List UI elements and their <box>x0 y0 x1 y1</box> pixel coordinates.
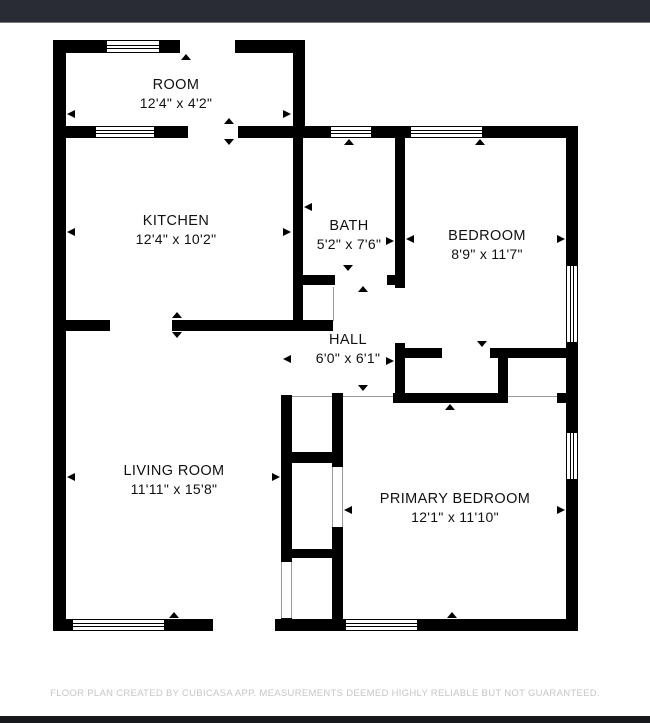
dimension-arrow-right <box>283 228 291 236</box>
window <box>330 126 372 138</box>
room-dimensions: 12'1" x 11'10" <box>380 509 531 526</box>
wall-segment <box>66 320 110 331</box>
room-label-hall: HALL6'0" x 6'1" <box>316 332 381 367</box>
opening-threshold-line <box>333 287 334 321</box>
window <box>410 126 483 138</box>
wall-segment <box>293 138 303 331</box>
room-dimensions: 12'4" x 4'2" <box>140 95 213 112</box>
room-dimensions: 11'11" x 15'8" <box>123 481 224 498</box>
wall-segment <box>332 527 343 619</box>
room-label-room: ROOM12'4" x 4'2" <box>140 77 213 112</box>
wall-segment <box>483 126 578 138</box>
floor-plan: ROOM12'4" x 4'2"KITCHEN12'4" x 10'2"BATH… <box>0 0 650 650</box>
room-dimensions: 8'9" x 11'7" <box>448 246 526 263</box>
opening-marker-up <box>358 286 368 292</box>
opening-marker-up <box>447 612 457 618</box>
opening-threshold-line <box>332 467 333 527</box>
dimension-arrow-left <box>67 110 75 118</box>
wall-segment <box>395 138 405 288</box>
room-name: BATH <box>317 218 382 236</box>
room-name: BEDROOM <box>448 228 526 246</box>
opening-marker-up <box>445 404 455 410</box>
window <box>345 619 418 631</box>
wall-segment <box>303 275 335 285</box>
wall-segment <box>293 40 305 138</box>
dimension-arrow-right <box>283 110 291 118</box>
room-name: ROOM <box>140 77 213 95</box>
room-name: LIVING ROOM <box>123 463 224 481</box>
wall-segment <box>566 480 578 631</box>
opening-threshold-line <box>343 396 393 397</box>
wall-segment <box>418 619 578 631</box>
window-pane <box>345 623 418 627</box>
window <box>106 40 160 53</box>
opening-marker-up <box>172 312 182 318</box>
dimension-arrow-right <box>386 237 394 245</box>
window-pane <box>330 130 372 134</box>
room-name: HALL <box>316 332 381 350</box>
dimension-arrow-right <box>557 506 565 514</box>
dimension-arrow-left <box>283 355 291 363</box>
room-label-kitchen: KITCHEN12'4" x 10'2" <box>136 213 217 248</box>
dimension-arrow-left <box>304 203 312 211</box>
window <box>95 126 155 138</box>
opening-marker-up <box>224 118 234 124</box>
window-pane <box>106 45 160 49</box>
room-label-bath: BATH5'2" x 7'6" <box>317 218 382 253</box>
opening-threshold-line <box>292 396 332 397</box>
opening-threshold-line <box>291 562 292 618</box>
wall-segment <box>160 40 180 53</box>
window-pane <box>570 432 574 480</box>
wall-segment <box>155 126 188 138</box>
window <box>566 432 578 480</box>
opening-marker-down <box>358 385 368 391</box>
disclaimer-text: FLOOR PLAN CREATED BY CUBICASA APP. MEAS… <box>0 688 650 699</box>
room-label-primary: PRIMARY BEDROOM12'1" x 11'10" <box>380 491 531 526</box>
wall-segment <box>53 619 72 631</box>
room-dimensions: 6'0" x 6'1" <box>316 350 381 367</box>
opening-threshold-line <box>281 562 282 618</box>
wall-segment <box>53 126 95 138</box>
opening-marker-up <box>181 54 191 60</box>
opening-threshold-line <box>508 396 557 397</box>
wall-segment <box>172 320 333 331</box>
window-pane <box>95 130 155 134</box>
wall-segment <box>557 393 578 403</box>
opening-marker-down <box>224 139 234 145</box>
wall-segment <box>238 126 330 138</box>
opening-marker-down <box>343 265 353 271</box>
dimension-arrow-right <box>557 235 565 243</box>
window-pane <box>72 623 165 627</box>
room-dimensions: 5'2" x 7'6" <box>317 236 382 253</box>
wall-segment <box>281 395 292 562</box>
wall-segment <box>405 348 442 358</box>
wall-segment <box>281 452 343 463</box>
opening-marker-down <box>172 332 182 338</box>
room-label-living: LIVING ROOM11'11" x 15'8" <box>123 463 224 498</box>
opening-marker-down <box>477 341 487 347</box>
bottom-bar <box>0 716 650 723</box>
wall-segment <box>372 126 410 138</box>
dimension-arrow-right <box>386 357 394 365</box>
wall-segment <box>281 549 343 558</box>
wall-segment <box>165 619 213 631</box>
wall-segment <box>393 393 508 403</box>
window-pane <box>410 130 483 134</box>
dimension-arrow-left <box>344 506 352 514</box>
opening-threshold-line <box>342 467 343 527</box>
wall-segment <box>281 618 292 631</box>
room-dimensions: 12'4" x 10'2" <box>136 231 217 248</box>
room-name: PRIMARY BEDROOM <box>380 491 531 509</box>
room-label-bedroom: BEDROOM8'9" x 11'7" <box>448 228 526 263</box>
dimension-arrow-right <box>272 473 280 481</box>
opening-marker-up <box>344 139 354 145</box>
dimension-arrow-left <box>406 235 414 243</box>
opening-marker-up <box>475 139 485 145</box>
room-name: KITCHEN <box>136 213 217 231</box>
dimension-arrow-left <box>67 473 75 481</box>
dimension-arrow-left <box>67 228 75 236</box>
window-pane <box>570 265 574 343</box>
opening-marker-up <box>169 612 179 618</box>
window <box>566 265 578 343</box>
wall-segment <box>566 126 578 265</box>
wall-segment <box>53 40 106 53</box>
window <box>72 619 165 631</box>
